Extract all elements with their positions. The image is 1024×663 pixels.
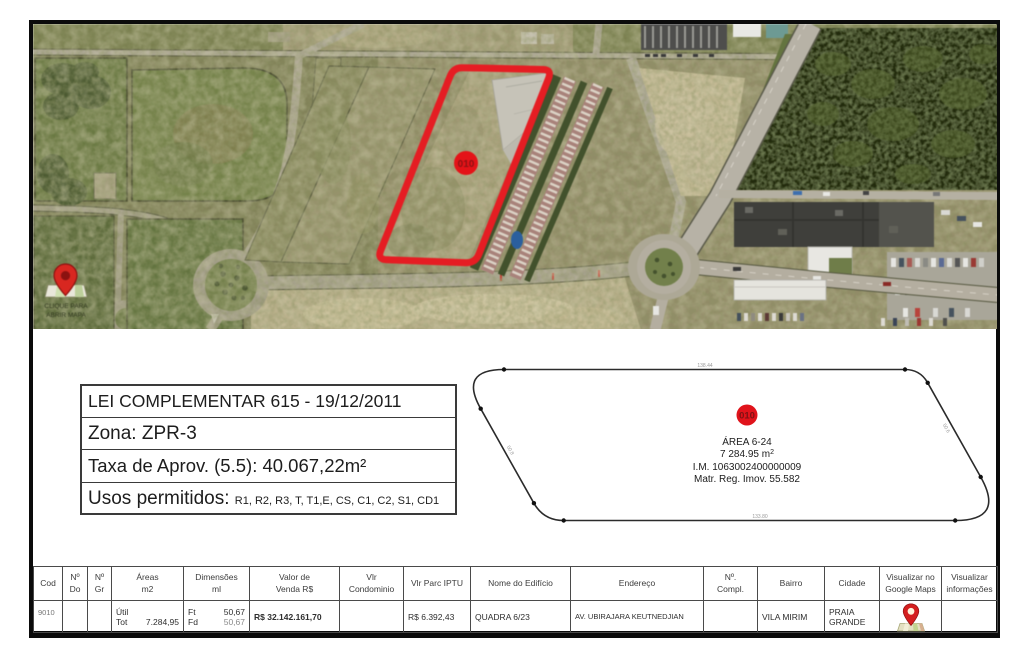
svg-text:7 284.95 m2: 7 284.95 m2 bbox=[720, 449, 774, 460]
svg-text:ÁREA 6-24: ÁREA 6-24 bbox=[722, 435, 772, 448]
svg-text:CLIQUE PARA: CLIQUE PARA bbox=[44, 303, 88, 310]
svg-text:138.44: 138.44 bbox=[697, 363, 713, 369]
svg-text:133.80: 133.80 bbox=[752, 514, 768, 520]
svg-text:I.M. 1063002400000009: I.M. 1063002400000009 bbox=[693, 462, 802, 473]
svg-text:Matr. Reg. Imov. 55.582: Matr. Reg. Imov. 55.582 bbox=[694, 474, 800, 485]
svg-text:010: 010 bbox=[739, 411, 755, 422]
svg-text:ABRIR MAPA: ABRIR MAPA bbox=[46, 312, 86, 319]
svg-text:010: 010 bbox=[458, 159, 475, 170]
